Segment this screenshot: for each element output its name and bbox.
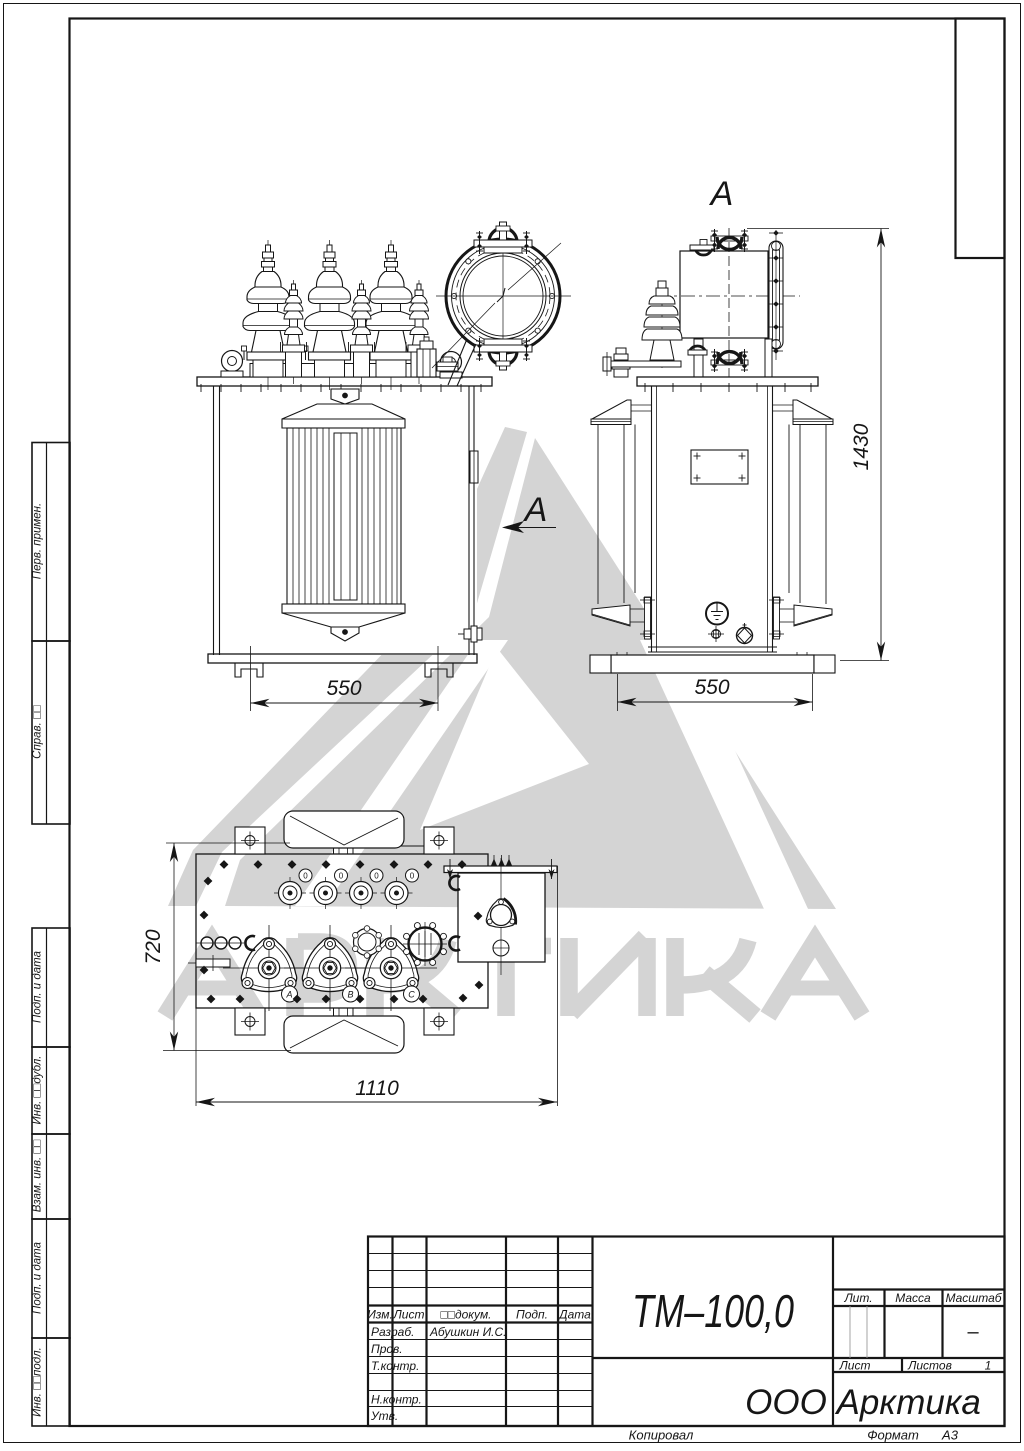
- svg-text:Инв. □□подл.: Инв. □□подл.: [32, 1347, 44, 1417]
- svg-text:550: 550: [326, 677, 361, 700]
- svg-text:Изм.: Изм.: [367, 1308, 393, 1322]
- svg-text:0: 0: [374, 872, 379, 881]
- svg-text:Т.контр.: Т.контр.: [371, 1359, 419, 1373]
- svg-text:Подп. и дата: Подп. и дата: [32, 951, 44, 1023]
- svg-text:1430: 1430: [850, 423, 873, 470]
- svg-text:Перв. примен.: Перв. примен.: [32, 503, 44, 579]
- svg-text:550: 550: [694, 676, 729, 699]
- svg-text:А: А: [523, 491, 548, 529]
- svg-text:А3: А3: [941, 1428, 959, 1443]
- svg-text:Масштаб: Масштаб: [945, 1291, 1002, 1305]
- svg-text:□□докум.: □□докум.: [440, 1308, 491, 1322]
- svg-text:А: А: [285, 990, 292, 1000]
- svg-text:Утв.: Утв.: [370, 1409, 398, 1423]
- svg-text:Пров.: Пров.: [371, 1342, 403, 1356]
- svg-text:А: А: [709, 175, 734, 213]
- svg-text:Абушкин И.С.: Абушкин И.С.: [429, 1325, 507, 1339]
- svg-text:Н.контр.: Н.контр.: [371, 1393, 422, 1407]
- svg-text:Справ. □□: Справ. □□: [32, 705, 44, 759]
- svg-text:Дата: Дата: [557, 1308, 591, 1322]
- svg-text:В: В: [347, 990, 353, 1000]
- svg-text:Лист: Лист: [393, 1308, 425, 1322]
- svg-text:Подп.: Подп.: [516, 1308, 548, 1322]
- svg-text:Взам. инв. □□: Взам. инв. □□: [32, 1140, 44, 1213]
- svg-text:–: –: [967, 1321, 979, 1343]
- svg-text:0: 0: [303, 872, 308, 881]
- svg-text:Копировал: Копировал: [629, 1428, 694, 1443]
- svg-text:Масса: Масса: [895, 1291, 931, 1305]
- svg-text:1: 1: [985, 1359, 992, 1373]
- svg-text:720: 720: [142, 929, 165, 964]
- svg-text:Лит.: Лит.: [843, 1291, 872, 1305]
- svg-text:ТМ–100,0: ТМ–100,0: [632, 1286, 794, 1337]
- svg-text:ООО Арктика: ООО Арктика: [745, 1383, 981, 1422]
- svg-text:1110: 1110: [355, 1077, 399, 1100]
- svg-text:0: 0: [410, 872, 415, 881]
- svg-text:Подп. и дата: Подп. и дата: [32, 1242, 44, 1314]
- svg-text:Лист: Лист: [839, 1359, 871, 1373]
- svg-text:С: С: [408, 990, 415, 1000]
- svg-text:Разраб.: Разраб.: [371, 1325, 414, 1339]
- svg-text:Листов: Листов: [907, 1359, 952, 1373]
- svg-text:0: 0: [339, 872, 344, 881]
- svg-text:Инв. □□дубл.: Инв. □□дубл.: [32, 1056, 44, 1125]
- svg-text:Формат: Формат: [867, 1428, 919, 1443]
